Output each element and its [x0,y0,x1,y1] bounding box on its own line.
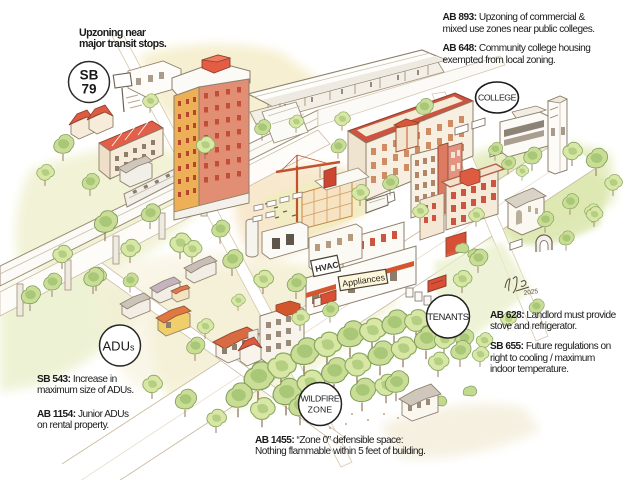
svg-text:COLLEGE: COLLEGE [478,93,517,103]
svg-text:TENANTS: TENANTS [427,312,468,322]
svg-text:ZONE: ZONE [308,405,333,415]
svg-text:79: 79 [81,82,96,97]
svg-text:SB: SB [80,68,99,83]
svg-text:WILDFIRE: WILDFIRE [301,394,340,404]
